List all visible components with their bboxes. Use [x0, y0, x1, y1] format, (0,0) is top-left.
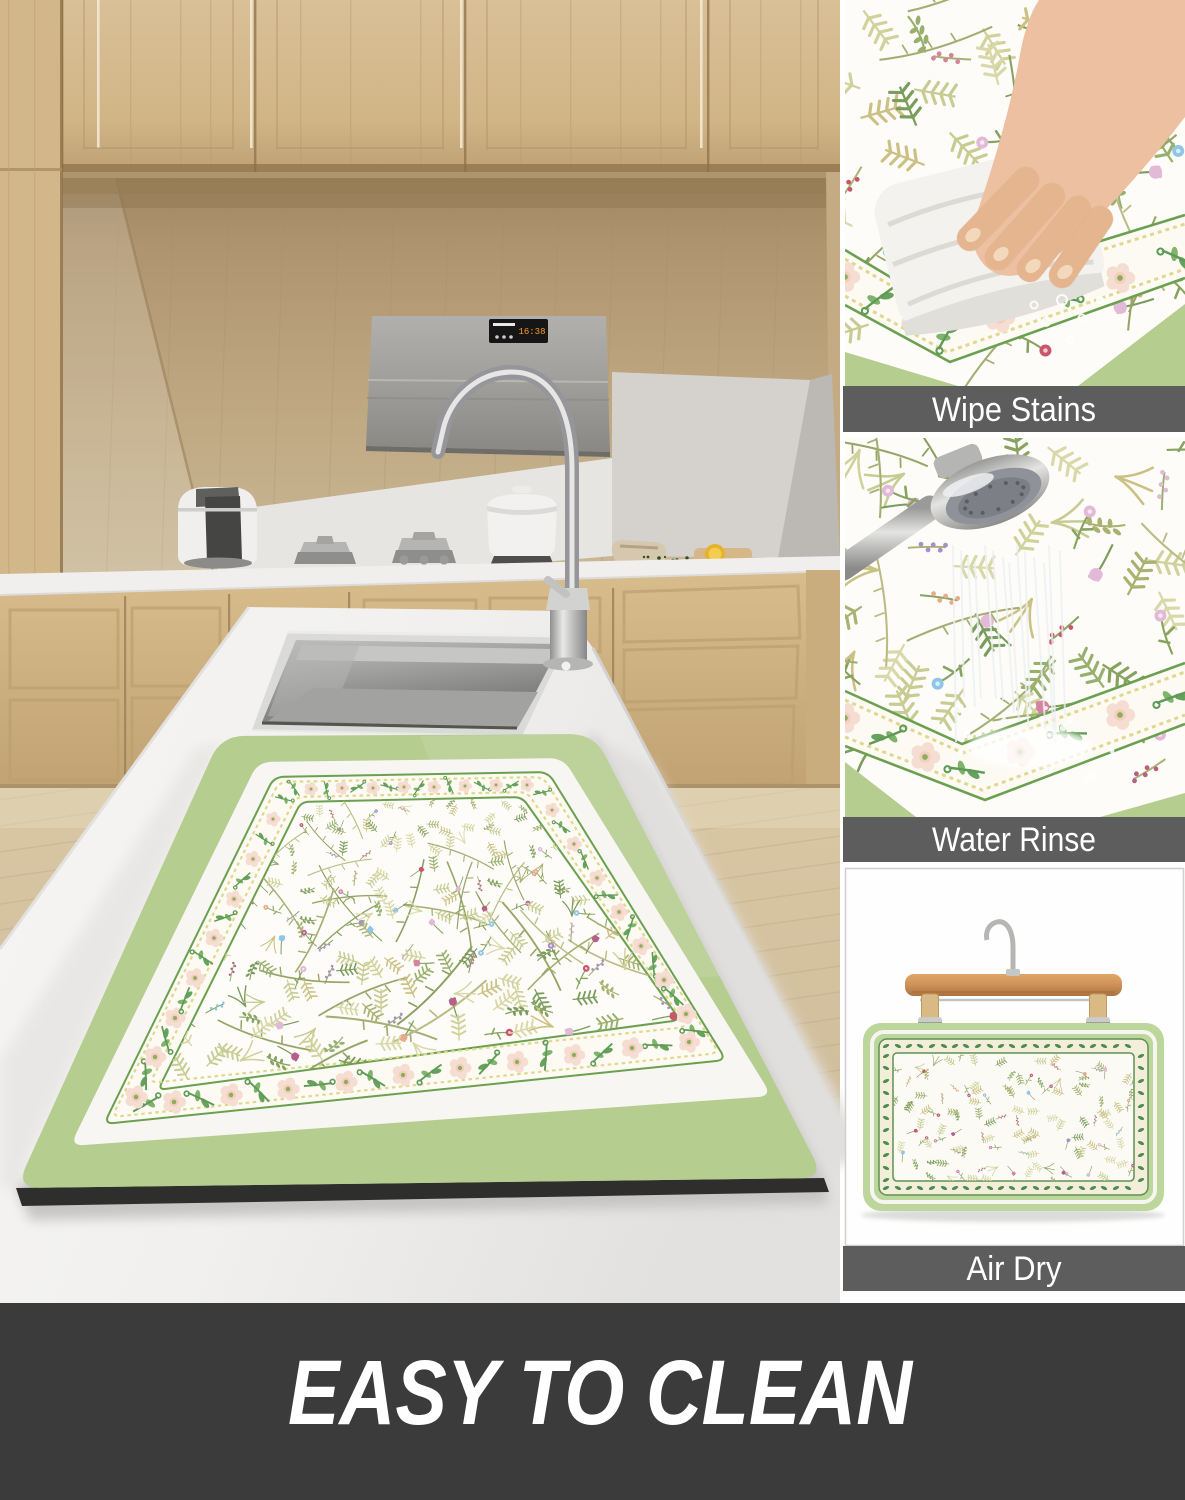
svg-text:Air Dry: Air Dry	[967, 1250, 1062, 1288]
svg-text:Water Rinse: Water Rinse	[932, 821, 1096, 859]
svg-text:EASY TO CLEAN: EASY TO CLEAN	[288, 1342, 914, 1444]
svg-text:16:38: 16:38	[518, 327, 545, 337]
svg-text:Wipe Stains: Wipe Stains	[932, 391, 1096, 429]
